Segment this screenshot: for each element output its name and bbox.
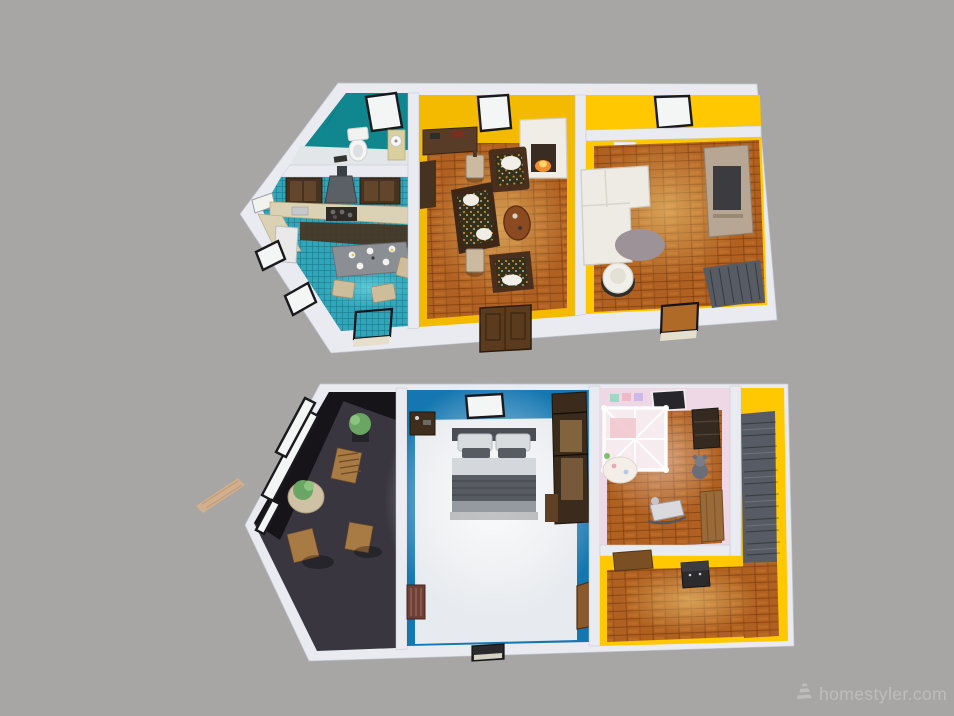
floorplan-render: homestyler.com xyxy=(0,0,954,716)
swivel-chair xyxy=(601,263,635,297)
round-rug xyxy=(615,229,665,261)
upper-floor-plan xyxy=(240,83,777,353)
exterior-window-family xyxy=(661,303,698,333)
armchair xyxy=(488,146,530,192)
floor-lamp xyxy=(466,151,484,183)
bedroom-side-table xyxy=(545,494,558,522)
wall-bedroom-nursery xyxy=(589,386,600,646)
radiator xyxy=(407,585,425,619)
staircase-lower xyxy=(741,411,780,563)
toilet xyxy=(347,127,368,161)
media-cabinet xyxy=(704,145,753,237)
nightstand xyxy=(410,412,435,435)
chair-shadow xyxy=(302,555,334,569)
kitchen-sink xyxy=(292,207,308,215)
floral-sofa xyxy=(451,182,500,254)
staircase-upper xyxy=(703,260,765,308)
teddy-bear xyxy=(692,455,708,479)
lower-floor-plan xyxy=(245,380,794,661)
storage-chest xyxy=(681,561,710,588)
potted-plant xyxy=(349,413,371,442)
nursery-wall-decor xyxy=(610,393,643,402)
family-window xyxy=(655,96,692,128)
bathroom-window xyxy=(366,93,402,131)
living-window xyxy=(478,95,511,131)
room-living xyxy=(419,95,575,327)
bedroom-window xyxy=(466,394,504,418)
exterior-window-kitchen xyxy=(354,309,392,339)
wall-kitchen-living xyxy=(408,93,419,329)
hall-desk xyxy=(613,550,653,571)
watermark: homestyler.com xyxy=(797,683,947,704)
bedroom-door xyxy=(577,582,589,629)
wall-nursery-stairhall xyxy=(730,386,741,556)
nursery-dresser xyxy=(692,408,720,449)
side-cabinet xyxy=(420,160,436,209)
armchair xyxy=(489,251,534,293)
exterior-door xyxy=(480,305,531,352)
room-nursery xyxy=(598,388,730,552)
room-bedroom xyxy=(384,380,604,646)
sideboard xyxy=(423,127,477,155)
nursery-bench xyxy=(700,490,724,542)
stove xyxy=(326,207,357,221)
lower-exterior-door xyxy=(472,644,504,661)
floor-lamp xyxy=(466,249,484,277)
watermark-text: homestyler.com xyxy=(819,684,947,704)
room-family xyxy=(581,95,767,314)
bathroom-sink xyxy=(388,130,405,160)
outdoor-table xyxy=(288,480,324,513)
chair-shadow xyxy=(354,546,382,558)
